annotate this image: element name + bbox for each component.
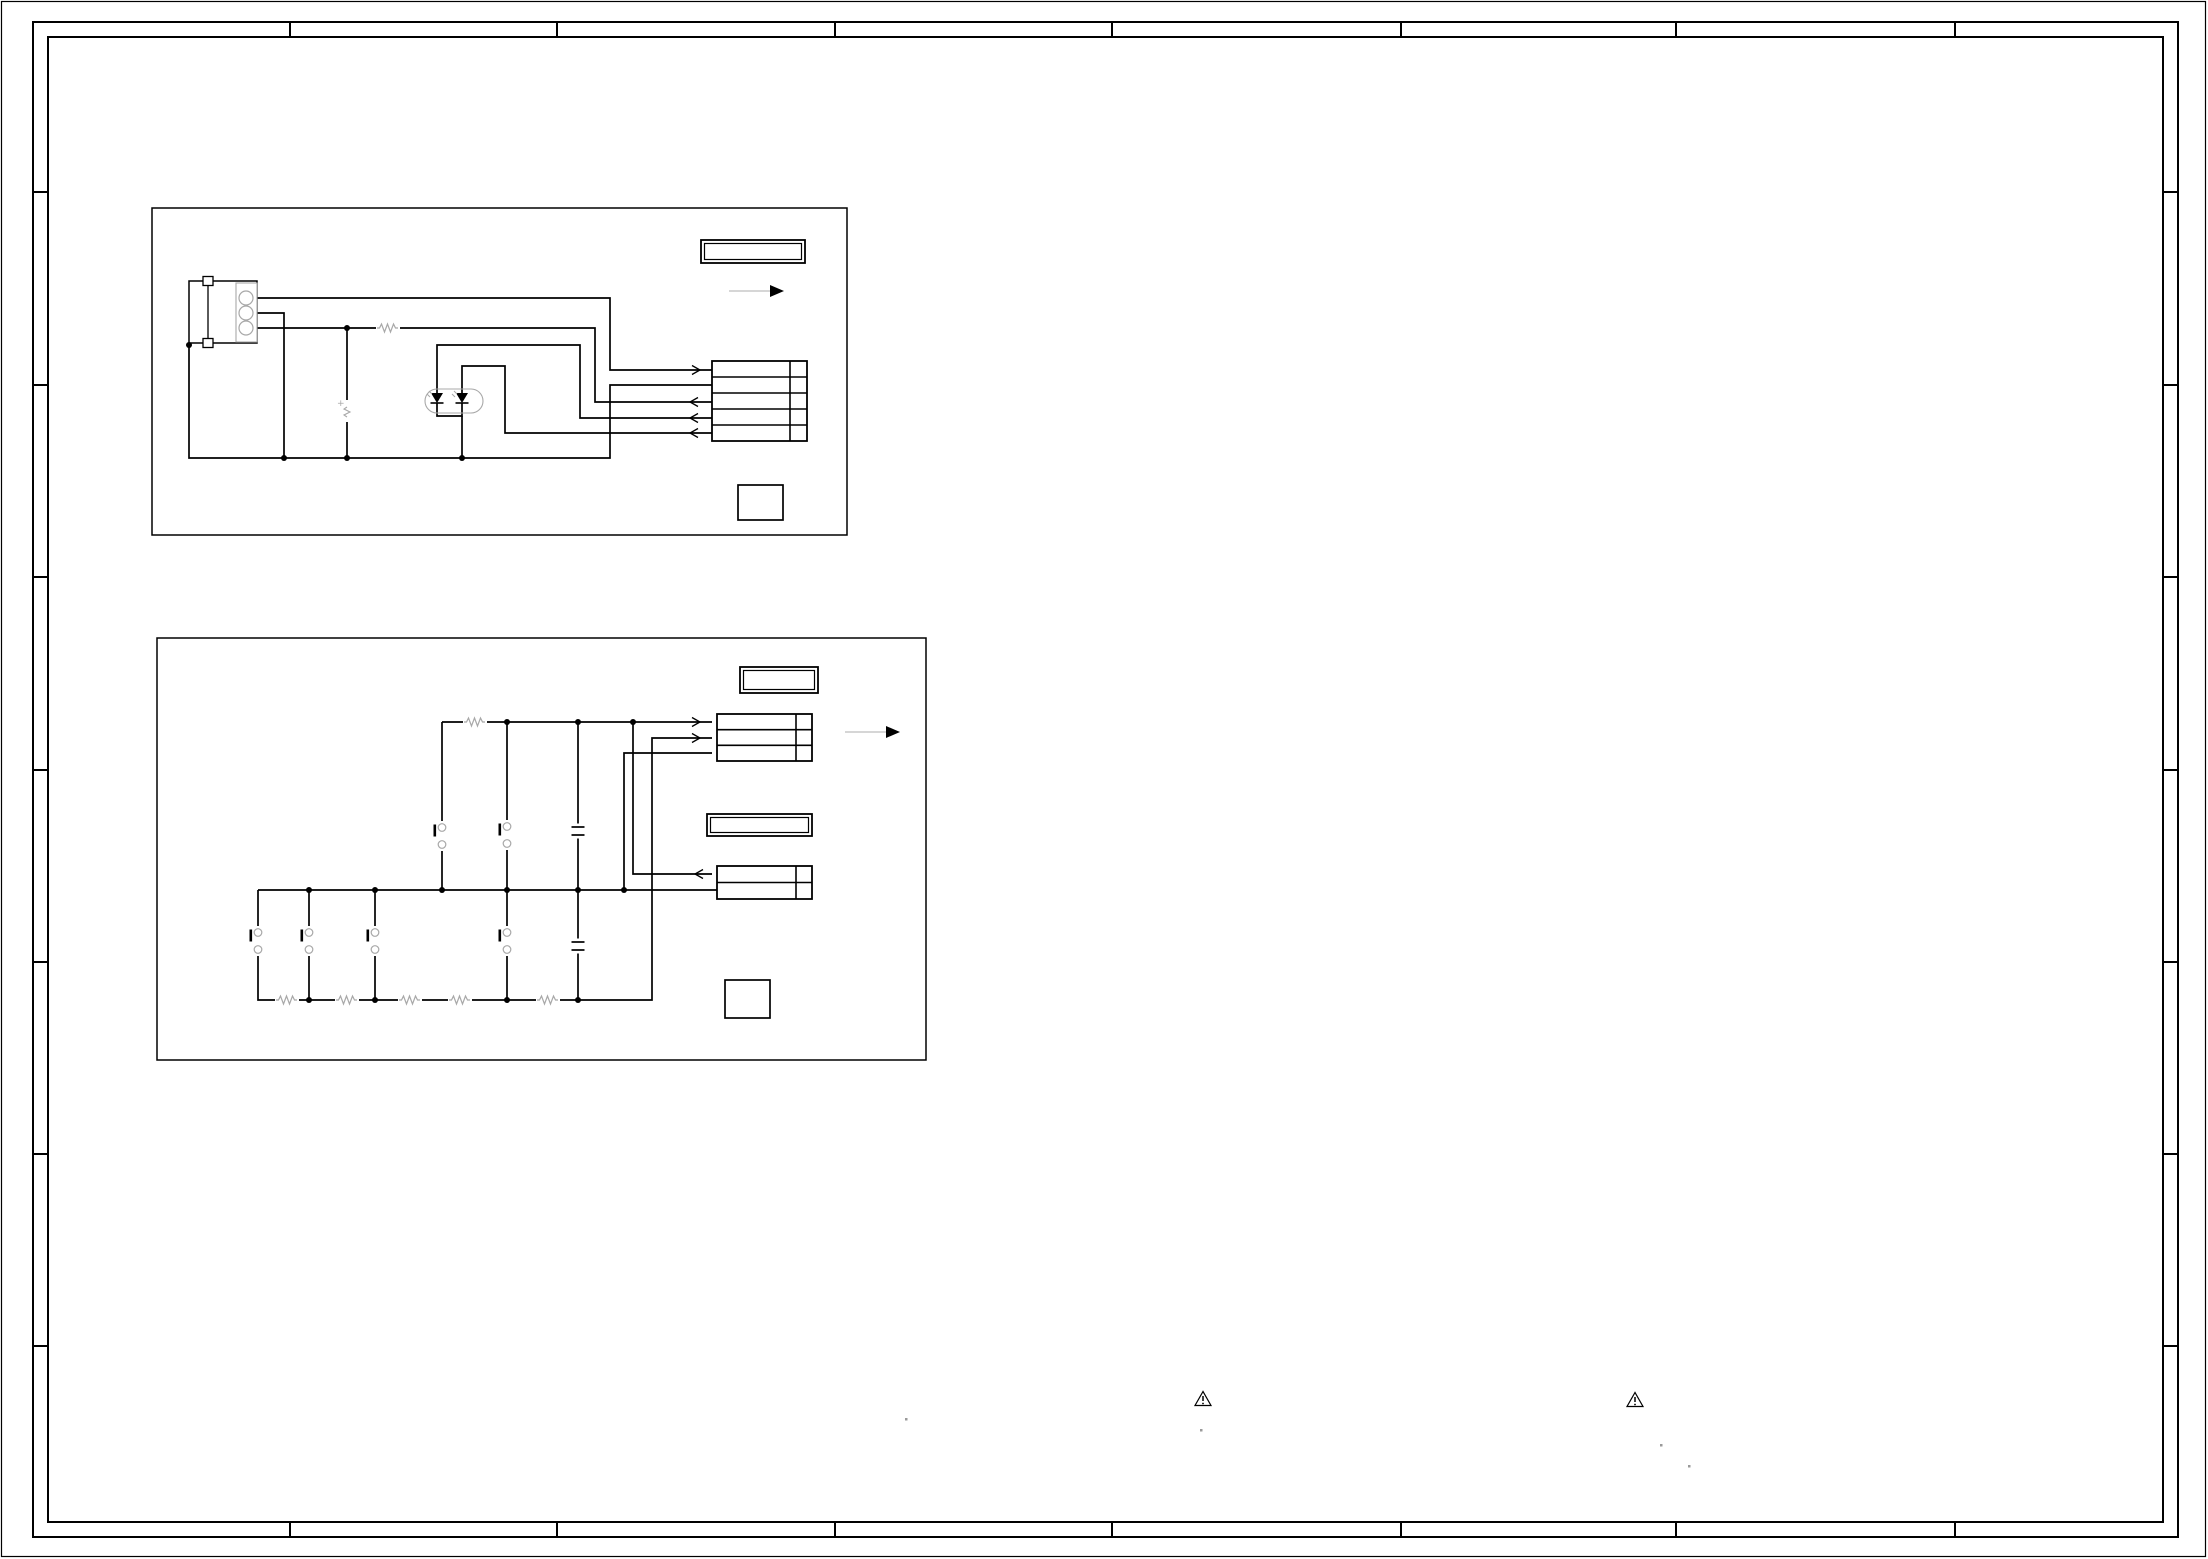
- junction-dot: [344, 455, 350, 461]
- push-switch-contact: [503, 840, 511, 848]
- connector-table-5pin: [712, 361, 807, 441]
- push-switch-contact: [305, 946, 313, 954]
- title-box-2-inner: [744, 671, 815, 690]
- junction-dot: [575, 719, 581, 725]
- wire: [258, 738, 712, 1000]
- junction-dot: [186, 342, 192, 348]
- junction-dot: [630, 719, 636, 725]
- push-switch-contact: [503, 929, 511, 937]
- buzzer-polarity-label: +: [337, 399, 345, 409]
- junction-dot: [459, 455, 465, 461]
- led-icon: [456, 393, 468, 403]
- warning-icon-dot: [1202, 1403, 1204, 1405]
- connector-pin: [239, 306, 253, 320]
- junction-dot: [504, 719, 510, 725]
- push-switch-contact: [371, 929, 379, 937]
- wire: [253, 298, 712, 370]
- capacitor-backing: [570, 824, 586, 839]
- footnote-speck: [905, 1418, 908, 1421]
- wire: [624, 753, 712, 890]
- junction-dot: [372, 887, 378, 893]
- junction-dot: [621, 887, 627, 893]
- schematic-sheet: +: [0, 0, 2208, 1559]
- junction-dot: [575, 887, 581, 893]
- flow-arrow-icon: [886, 726, 900, 738]
- push-switch-contact: [371, 946, 379, 954]
- push-switch-contact: [254, 929, 262, 937]
- warning-icon-dot: [1634, 1404, 1636, 1406]
- push-switch-contact: [254, 946, 262, 954]
- connector-table-3pin: [717, 714, 812, 761]
- led-emission-marks: [452, 391, 457, 397]
- push-switch-contact: [305, 929, 313, 937]
- junction-dot: [344, 325, 350, 331]
- junction-dot: [439, 887, 445, 893]
- connector-pin: [239, 321, 253, 335]
- push-switch-actuator: [434, 825, 437, 837]
- push-switch-actuator: [499, 824, 502, 836]
- wire: [437, 403, 462, 416]
- push-switch-contact: [503, 946, 511, 954]
- push-switch-actuator: [250, 930, 253, 942]
- junction-dot: [281, 455, 287, 461]
- junction-dot: [306, 997, 312, 1003]
- junction-dot: [306, 887, 312, 893]
- push-switch-actuator: [301, 930, 304, 942]
- drawing-frame-inner: [48, 37, 2163, 1522]
- connector-pin: [239, 291, 253, 305]
- push-switch-contact: [438, 824, 446, 832]
- page-edge: [2, 2, 2206, 1557]
- label-box-inner: [711, 818, 809, 833]
- wire: [633, 722, 712, 874]
- flow-arrow-icon: [770, 285, 784, 297]
- led-icon: [431, 393, 443, 403]
- detail-square: [725, 980, 770, 1018]
- footnote-speck: [1660, 1444, 1663, 1447]
- junction-dot: [504, 997, 510, 1003]
- junction-dot: [372, 997, 378, 1003]
- footnote-speck: [1200, 1429, 1203, 1432]
- detail-square: [738, 485, 783, 520]
- title-box-1-inner: [705, 244, 802, 260]
- footnote-speck: [1688, 1465, 1691, 1468]
- wire: [462, 366, 712, 433]
- mounting-square: [203, 339, 213, 348]
- schematic-canvas: +: [0, 0, 2208, 1559]
- drawing-frame-outer: [33, 22, 2178, 1537]
- wire: [253, 328, 712, 402]
- push-switch-contact: [503, 823, 511, 831]
- push-switch-actuator: [367, 930, 370, 942]
- mounting-square: [203, 277, 213, 286]
- push-switch-actuator: [499, 930, 502, 942]
- wire: [437, 345, 712, 418]
- wire: [189, 343, 712, 458]
- capacitor-backing: [570, 939, 586, 954]
- junction-dot: [504, 887, 510, 893]
- led-package-outline: [425, 389, 483, 413]
- junction-dot: [575, 997, 581, 1003]
- push-switch-contact: [438, 841, 446, 849]
